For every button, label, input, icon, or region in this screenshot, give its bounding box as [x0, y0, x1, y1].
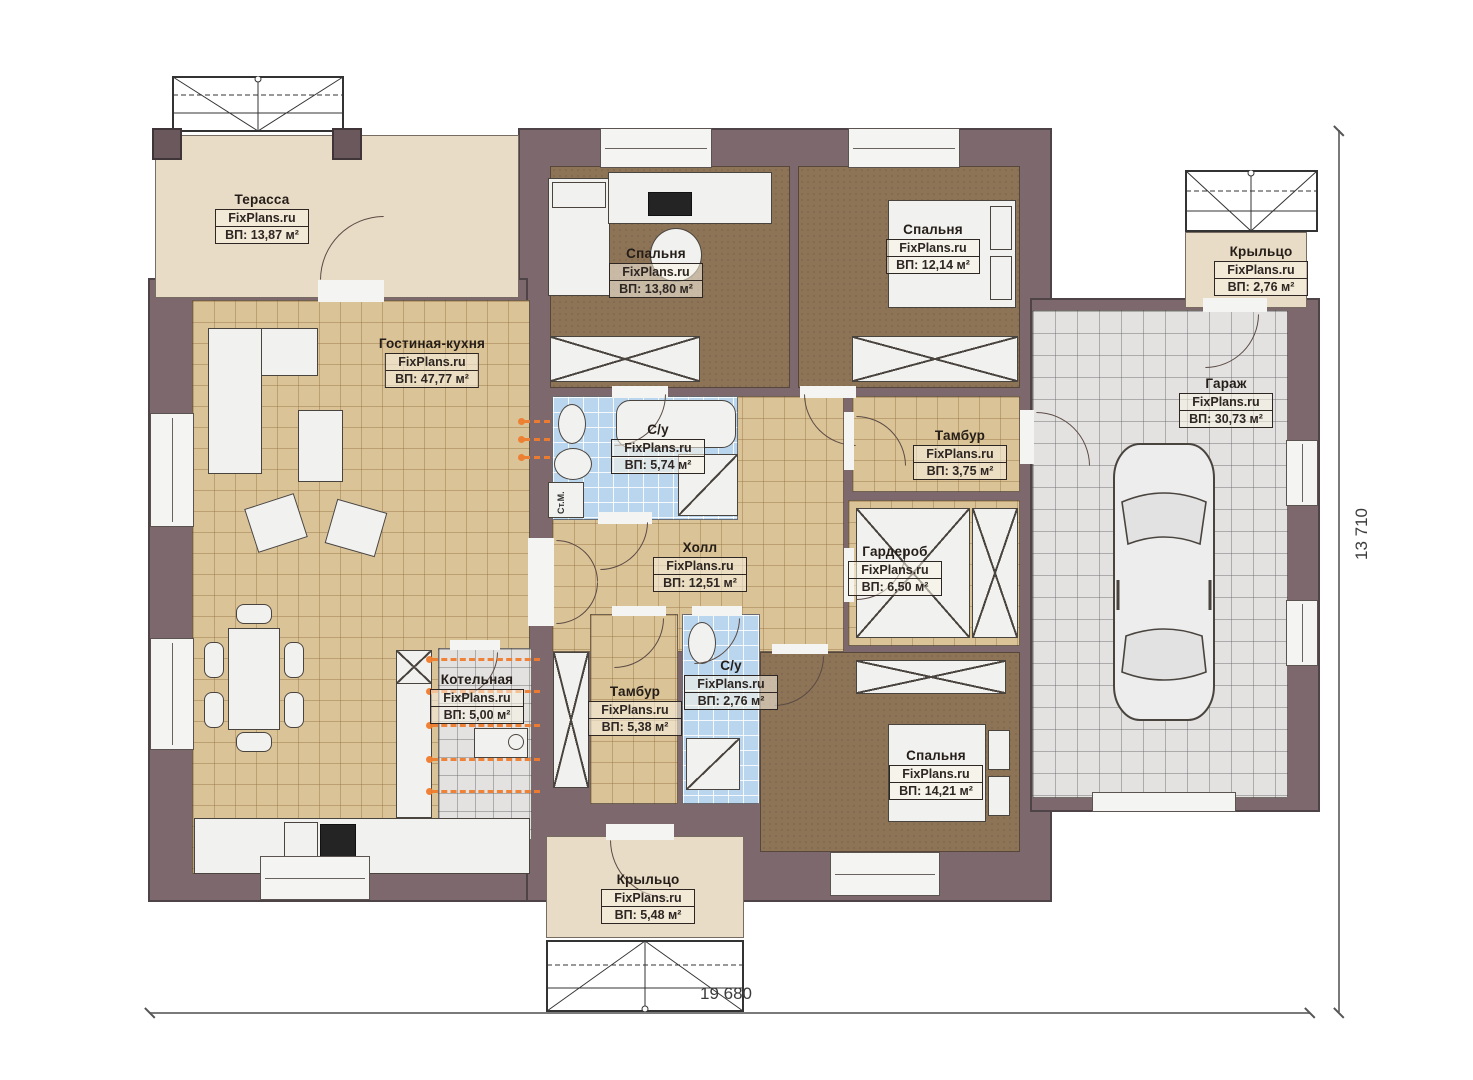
hall-closet [553, 652, 589, 788]
radiator-bath-1 [524, 420, 550, 423]
vestibule2-door-opening [844, 412, 854, 470]
watermark: FixPlans.ru [386, 354, 478, 370]
sink1 [554, 448, 592, 480]
watermark: FixPlans.ru [610, 264, 702, 280]
bed2-pillow-1 [990, 206, 1012, 250]
dining-chair-left-1 [204, 642, 224, 678]
garage-door-opening [1020, 410, 1034, 464]
dimension-line-right [1338, 130, 1340, 1012]
kitchen-counter-sink-cross-icon [396, 650, 432, 684]
window-living-bottom [260, 856, 370, 900]
room-area: ВП: 12,51 м² [654, 574, 746, 591]
window-living-left-2 [150, 638, 194, 750]
heating-manifold-5 [432, 790, 540, 793]
garage-gate-opening [1092, 792, 1236, 812]
room-area: ВП: 12,14 м² [887, 256, 979, 273]
sofa-vertical [208, 328, 262, 474]
dimension-line-bottom [150, 1012, 1310, 1014]
wardrobe-unit-right [972, 508, 1018, 638]
boiler-dial [508, 734, 524, 750]
terrace-door-opening [318, 280, 384, 302]
dining-table [228, 628, 280, 730]
room-area: ВП: 6,50 м² [849, 578, 941, 595]
watermark: FixPlans.ru [849, 562, 941, 578]
porch-right-door-opening [1203, 298, 1267, 312]
room-area: ВП: 5,74 м² [612, 456, 704, 473]
watermark: FixPlans.ru [914, 446, 1006, 462]
room-label-terrace: Терасса FixPlans.ru ВП: 13,87 м² [215, 192, 309, 244]
watermark: FixPlans.ru [1215, 262, 1307, 278]
front-door-opening [606, 824, 674, 840]
room-area: ВП: 13,87 м² [216, 226, 308, 243]
room-name: Спальня [609, 246, 703, 261]
room-name: Котельная [430, 672, 524, 687]
room-area: ВП: 5,00 м² [431, 706, 523, 723]
room-area: ВП: 5,48 м² [602, 906, 694, 923]
room-name: Спальня [886, 222, 980, 237]
heating-manifold-1 [432, 658, 540, 661]
bed3-pillow-2 [988, 776, 1010, 816]
shower2 [686, 738, 740, 790]
dining-chair-top [236, 604, 272, 624]
room-name: С/у [684, 658, 778, 673]
room-area: ВП: 5,38 м² [589, 718, 681, 735]
coffee-table [298, 410, 343, 482]
bed2-pillow-2 [990, 256, 1012, 300]
radiator-bath-3 [524, 456, 550, 459]
room-name: Гардероб [848, 544, 942, 559]
radiator-bath-2 [524, 438, 550, 441]
room-name: Холл [653, 540, 747, 555]
watermark: FixPlans.ru [431, 690, 523, 706]
room-label-vestibule2: Тамбур FixPlans.ru ВП: 3,75 м² [913, 428, 1007, 480]
watermark: FixPlans.ru [890, 766, 982, 782]
window-garage-right-2 [1286, 600, 1318, 666]
room-label-porch-bottom: Крыльцо FixPlans.ru ВП: 5,48 м² [601, 872, 695, 924]
car [1110, 440, 1218, 724]
dining-chair-bottom [236, 732, 272, 752]
washing-machine-label: Ст.М. [556, 491, 566, 514]
room-label-living-kitchen: Гостиная-кухня FixPlans.ru ВП: 47,77 м² [379, 336, 485, 388]
room-label-wardrobe: Гардероб FixPlans.ru ВП: 6,50 м² [848, 544, 942, 596]
room-label-bathroom2: С/у FixPlans.ru ВП: 2,76 м² [684, 658, 778, 710]
floor-plan: Ст.М. Терасса FixPlans.ru ВП: 13,87 м² Г… [0, 0, 1473, 1080]
room-label-bathroom1: С/у FixPlans.ru ВП: 5,74 м² [611, 422, 705, 474]
terrace-stairs [172, 76, 344, 132]
watermark: FixPlans.ru [654, 558, 746, 574]
wardrobe-bedroom1 [550, 336, 700, 382]
room-area: ВП: 2,76 м² [685, 692, 777, 709]
room-name: Спальня [889, 748, 983, 763]
window-bedroom1-top [600, 128, 712, 168]
dining-chair-left-2 [204, 692, 224, 728]
wardrobe-bedroom2 [852, 336, 1018, 382]
vestibule1-door-opening [612, 606, 666, 616]
room-name: С/у [611, 422, 705, 437]
porch-right-stairs [1185, 170, 1318, 232]
toilet1 [558, 404, 586, 444]
room-label-boiler: Котельная FixPlans.ru ВП: 5,00 м² [430, 672, 524, 724]
dimension-width-label: 19 680 [700, 984, 752, 1004]
window-bedroom3-bottom [830, 852, 940, 896]
room-name: Крыльцо [601, 872, 695, 887]
room-name: Тамбур [913, 428, 1007, 443]
room-name: Гараж [1179, 376, 1273, 391]
wardrobe-bedroom3 [856, 660, 1006, 694]
heating-manifold-4 [432, 758, 540, 761]
dining-chair-right-2 [284, 692, 304, 728]
watermark: FixPlans.ru [602, 890, 694, 906]
window-garage-right-1 [1286, 440, 1318, 506]
bed3-pillow-1 [988, 730, 1010, 770]
hall-double-door-opening [528, 538, 554, 626]
dimension-height-label: 13 710 [1352, 508, 1372, 560]
room-area: ВП: 13,80 м² [610, 280, 702, 297]
desk-printer [648, 192, 692, 216]
terrace-post-right [332, 128, 362, 160]
bedroom3-door-opening [772, 644, 828, 654]
washing-machine [548, 482, 584, 518]
boiler-door-opening [450, 640, 500, 650]
room-label-hall: Холл FixPlans.ru ВП: 12,51 м² [653, 540, 747, 592]
terrace-post-left [152, 128, 182, 160]
room-name: Крыльцо [1214, 244, 1308, 259]
watermark: FixPlans.ru [216, 210, 308, 226]
room-area: ВП: 47,77 м² [386, 370, 478, 387]
room-label-porch-right: Крыльцо FixPlans.ru ВП: 2,76 м² [1214, 244, 1308, 296]
watermark: FixPlans.ru [1180, 394, 1272, 410]
watermark: FixPlans.ru [685, 676, 777, 692]
room-area: ВП: 30,73 м² [1180, 410, 1272, 427]
room-label-bedroom1: Спальня FixPlans.ru ВП: 13,80 м² [609, 246, 703, 298]
window-bedroom2-top [848, 128, 960, 168]
room-label-vestibule1: Тамбур FixPlans.ru ВП: 5,38 м² [588, 684, 682, 736]
room-area: ВП: 14,21 м² [890, 782, 982, 799]
bathroom2-door-opening [692, 606, 742, 616]
dining-chair-right-1 [284, 642, 304, 678]
room-label-garage: Гараж FixPlans.ru ВП: 30,73 м² [1179, 376, 1273, 428]
window-living-left-1 [150, 413, 194, 527]
room-area: ВП: 3,75 м² [914, 462, 1006, 479]
room-label-bedroom2: Спальня FixPlans.ru ВП: 12,14 м² [886, 222, 980, 274]
room-name: Терасса [215, 192, 309, 207]
bed1-pillow [552, 182, 606, 208]
room-name: Тамбур [588, 684, 682, 699]
room-area: ВП: 2,76 м² [1215, 278, 1307, 295]
heating-manifold-3 [432, 724, 540, 727]
watermark: FixPlans.ru [589, 702, 681, 718]
room-name: Гостиная-кухня [379, 336, 485, 351]
watermark: FixPlans.ru [612, 440, 704, 456]
watermark: FixPlans.ru [887, 240, 979, 256]
room-label-bedroom3: Спальня FixPlans.ru ВП: 14,21 м² [889, 748, 983, 800]
